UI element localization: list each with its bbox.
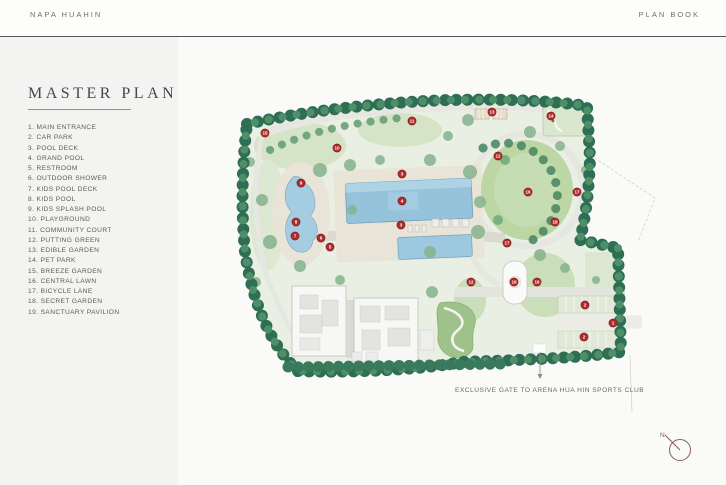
- svg-text:12: 12: [495, 154, 501, 159]
- map-marker-putting-green-2: 12: [467, 278, 475, 286]
- exclusive-gate: [533, 344, 546, 353]
- compass-north-icon: N: [650, 424, 706, 470]
- map-marker-edible-garden: 13: [488, 108, 496, 116]
- gate-note: EXCLUSIVE GATE TO ARENA HUA HIN SPORTS C…: [455, 387, 675, 394]
- map-marker-car-park-2: 2: [580, 333, 588, 341]
- svg-text:13: 13: [489, 110, 495, 115]
- map-marker-pool-deck-2: 3: [397, 221, 405, 229]
- svg-text:14: 14: [548, 114, 554, 119]
- svg-text:17: 17: [504, 241, 510, 246]
- map-marker-bicycle-lane-2: 17: [503, 239, 511, 247]
- map-marker-kids-pool: 8: [292, 218, 300, 226]
- map-marker-playground: 10: [333, 144, 341, 152]
- map-marker-restroom: 5: [326, 243, 334, 251]
- svg-text:7: 7: [294, 234, 297, 239]
- svg-text:9: 9: [300, 181, 303, 186]
- svg-text:1: 1: [612, 321, 615, 326]
- compass-north-label: N: [660, 432, 665, 439]
- map-marker-central-lawn-2: 16: [533, 278, 541, 286]
- map-marker-main-entrance: 1: [609, 319, 617, 327]
- site-plan-svg: 1 2 2 3 4 3 5 6 7 8 9 10 11 13 14 15 12 …: [0, 0, 726, 485]
- map-marker-car-park: 2: [581, 301, 589, 309]
- map-marker-kids-pool-deck: 7: [291, 232, 299, 240]
- map-marker-grand-pool: 4: [398, 197, 406, 205]
- svg-text:19: 19: [511, 280, 517, 285]
- svg-text:17: 17: [574, 190, 580, 195]
- svg-text:2: 2: [583, 335, 586, 340]
- svg-text:3: 3: [400, 223, 403, 228]
- svg-text:11: 11: [410, 119, 415, 124]
- svg-text:16: 16: [525, 190, 531, 195]
- putting-green: [437, 302, 475, 358]
- svg-text:5: 5: [329, 245, 332, 250]
- map-marker-community-court: 11: [408, 117, 416, 125]
- map-marker-outdoor-shower: 6: [317, 234, 325, 242]
- svg-text:12: 12: [468, 280, 474, 285]
- map-marker-bicycle-lane: 17: [573, 188, 581, 196]
- svg-text:10: 10: [334, 146, 340, 151]
- compass-graphic: [650, 424, 706, 470]
- svg-text:16: 16: [534, 280, 540, 285]
- svg-text:2: 2: [584, 303, 587, 308]
- svg-text:15: 15: [262, 131, 268, 136]
- map-marker-pet-park: 14: [547, 112, 555, 120]
- grand-pool: [345, 178, 473, 223]
- map-marker-putting-green: 12: [494, 152, 502, 160]
- svg-text:6: 6: [320, 236, 323, 241]
- map-marker-secret-garden: 18: [551, 218, 559, 226]
- svg-text:4: 4: [401, 199, 404, 204]
- map-marker-kids-splash-pool: 9: [297, 179, 305, 187]
- kids-pool: [398, 234, 473, 259]
- svg-text:3: 3: [401, 172, 404, 177]
- map-marker-sanctuary-pavilion: 19: [510, 278, 518, 286]
- svg-text:8: 8: [295, 220, 298, 225]
- map-marker-breeze-garden: 15: [261, 129, 269, 137]
- map-marker-pool-deck: 3: [398, 170, 406, 178]
- map-marker-central-lawn: 16: [524, 188, 532, 196]
- svg-text:18: 18: [552, 220, 558, 225]
